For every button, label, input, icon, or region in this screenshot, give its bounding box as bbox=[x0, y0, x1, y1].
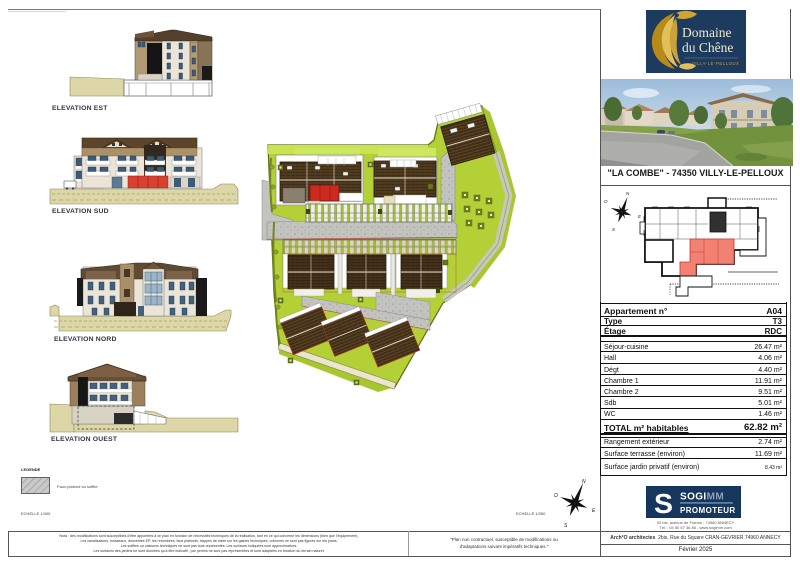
svg-text:S: S bbox=[654, 488, 673, 518]
svg-text:N: N bbox=[582, 479, 586, 485]
svg-text:VILLY-LE-PELLOUX: VILLY-LE-PELLOUX bbox=[692, 61, 740, 66]
svg-text:PROMOTEUR: PROMOTEUR bbox=[680, 506, 736, 515]
svg-text:S: S bbox=[564, 523, 568, 529]
svg-text:E: E bbox=[592, 508, 596, 514]
svg-text:S: S bbox=[612, 227, 615, 232]
svg-text:N: N bbox=[626, 191, 630, 196]
svg-text:du Chêne: du Chêne bbox=[682, 40, 733, 55]
svg-text:O: O bbox=[604, 199, 608, 204]
svg-text:E: E bbox=[638, 214, 642, 219]
svg-text:O: O bbox=[554, 493, 558, 499]
svg-text:Domaine: Domaine bbox=[682, 25, 732, 40]
svg-text:SOGIMM: SOGIMM bbox=[680, 492, 724, 503]
